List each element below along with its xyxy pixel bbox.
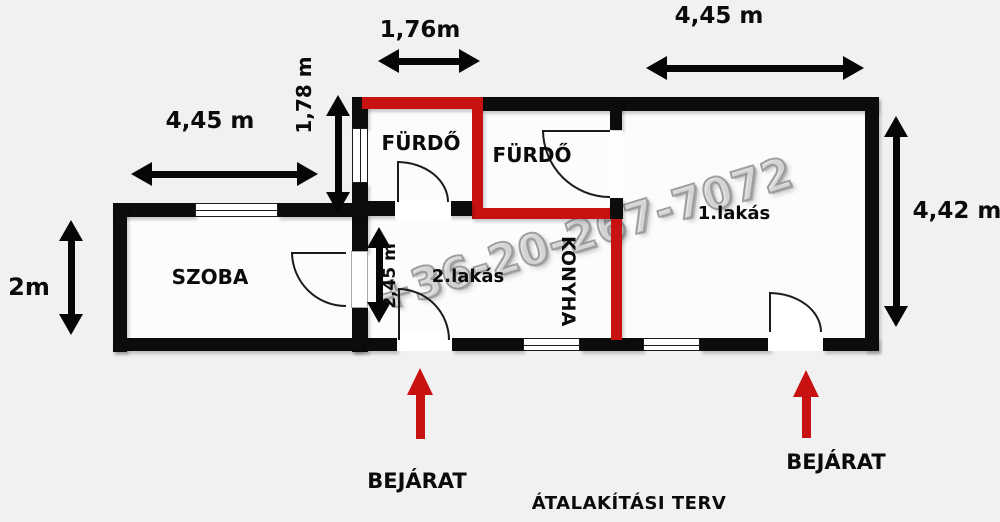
- wall-szoba-left: [113, 203, 127, 352]
- dim-label-4-45m-left: 4,45 m: [135, 109, 285, 133]
- wall-bathroom1-bottom-seg1: [368, 201, 397, 216]
- wall-szoba-bottom: [113, 338, 362, 351]
- door-sill-bathroom1: [395, 200, 451, 220]
- new-wall-kitchen-right: [611, 219, 622, 340]
- wall-bathroom2-right-lower: [610, 198, 623, 219]
- dim-label-4-42m: 4,42 m: [882, 199, 1000, 223]
- window-szoba-top: [195, 203, 278, 217]
- room-label-bathroom2: FÜRDŐ: [482, 144, 582, 166]
- dim-label-2-45m: 2,45 m: [381, 232, 399, 320]
- entrance-label-left: BEJÁRAT: [342, 469, 492, 493]
- dim-label-2m: 2m: [4, 275, 54, 300]
- new-wall-bathroom1-top: [362, 97, 483, 109]
- room-label-kitchen: KONYHA: [558, 236, 578, 326]
- window-bottom-left: [523, 338, 580, 351]
- door-leaf-szoba: [351, 251, 368, 308]
- dim-label-1-78m: 1,78 m: [293, 50, 315, 140]
- wall-right: [865, 97, 879, 351]
- room-label-apartment2: 2.lakás: [418, 266, 518, 287]
- wall-szoba-top-seg2: [278, 203, 368, 217]
- room-label-bathroom1: FÜRDŐ: [371, 132, 471, 154]
- window-bathroom1-left: [352, 128, 368, 183]
- wall-bottom-seg5: [823, 338, 879, 351]
- wall-top: [483, 97, 878, 111]
- wall-bottom-seg2: [452, 338, 523, 351]
- wall-bottom-seg4: [700, 338, 770, 351]
- room-label-szoba: SZOBA: [160, 266, 260, 288]
- plan-title: ÁTALAKÍTÁSI TERV: [525, 493, 733, 515]
- window-bottom-right: [643, 338, 700, 351]
- room-label-apartment1: 1.lakás: [684, 203, 784, 224]
- floor-plan-canvas: +36-20-267-7072: [0, 0, 1000, 522]
- entrance-label-right: BEJÁRAT: [761, 450, 911, 474]
- wall-left-middle: [352, 183, 368, 252]
- dim-label-1-76m: 1,76m: [370, 18, 470, 42]
- wall-bathroom2-right-upper: [610, 97, 622, 130]
- door-sill-entrance-right: [768, 330, 823, 351]
- wall-bathroom1-bottom-seg2: [449, 201, 472, 216]
- door-sill-bathroom2: [609, 131, 623, 197]
- new-wall-bathroom2-bottom: [483, 208, 612, 219]
- dim-label-4-45m-top: 4,45 m: [644, 5, 794, 28]
